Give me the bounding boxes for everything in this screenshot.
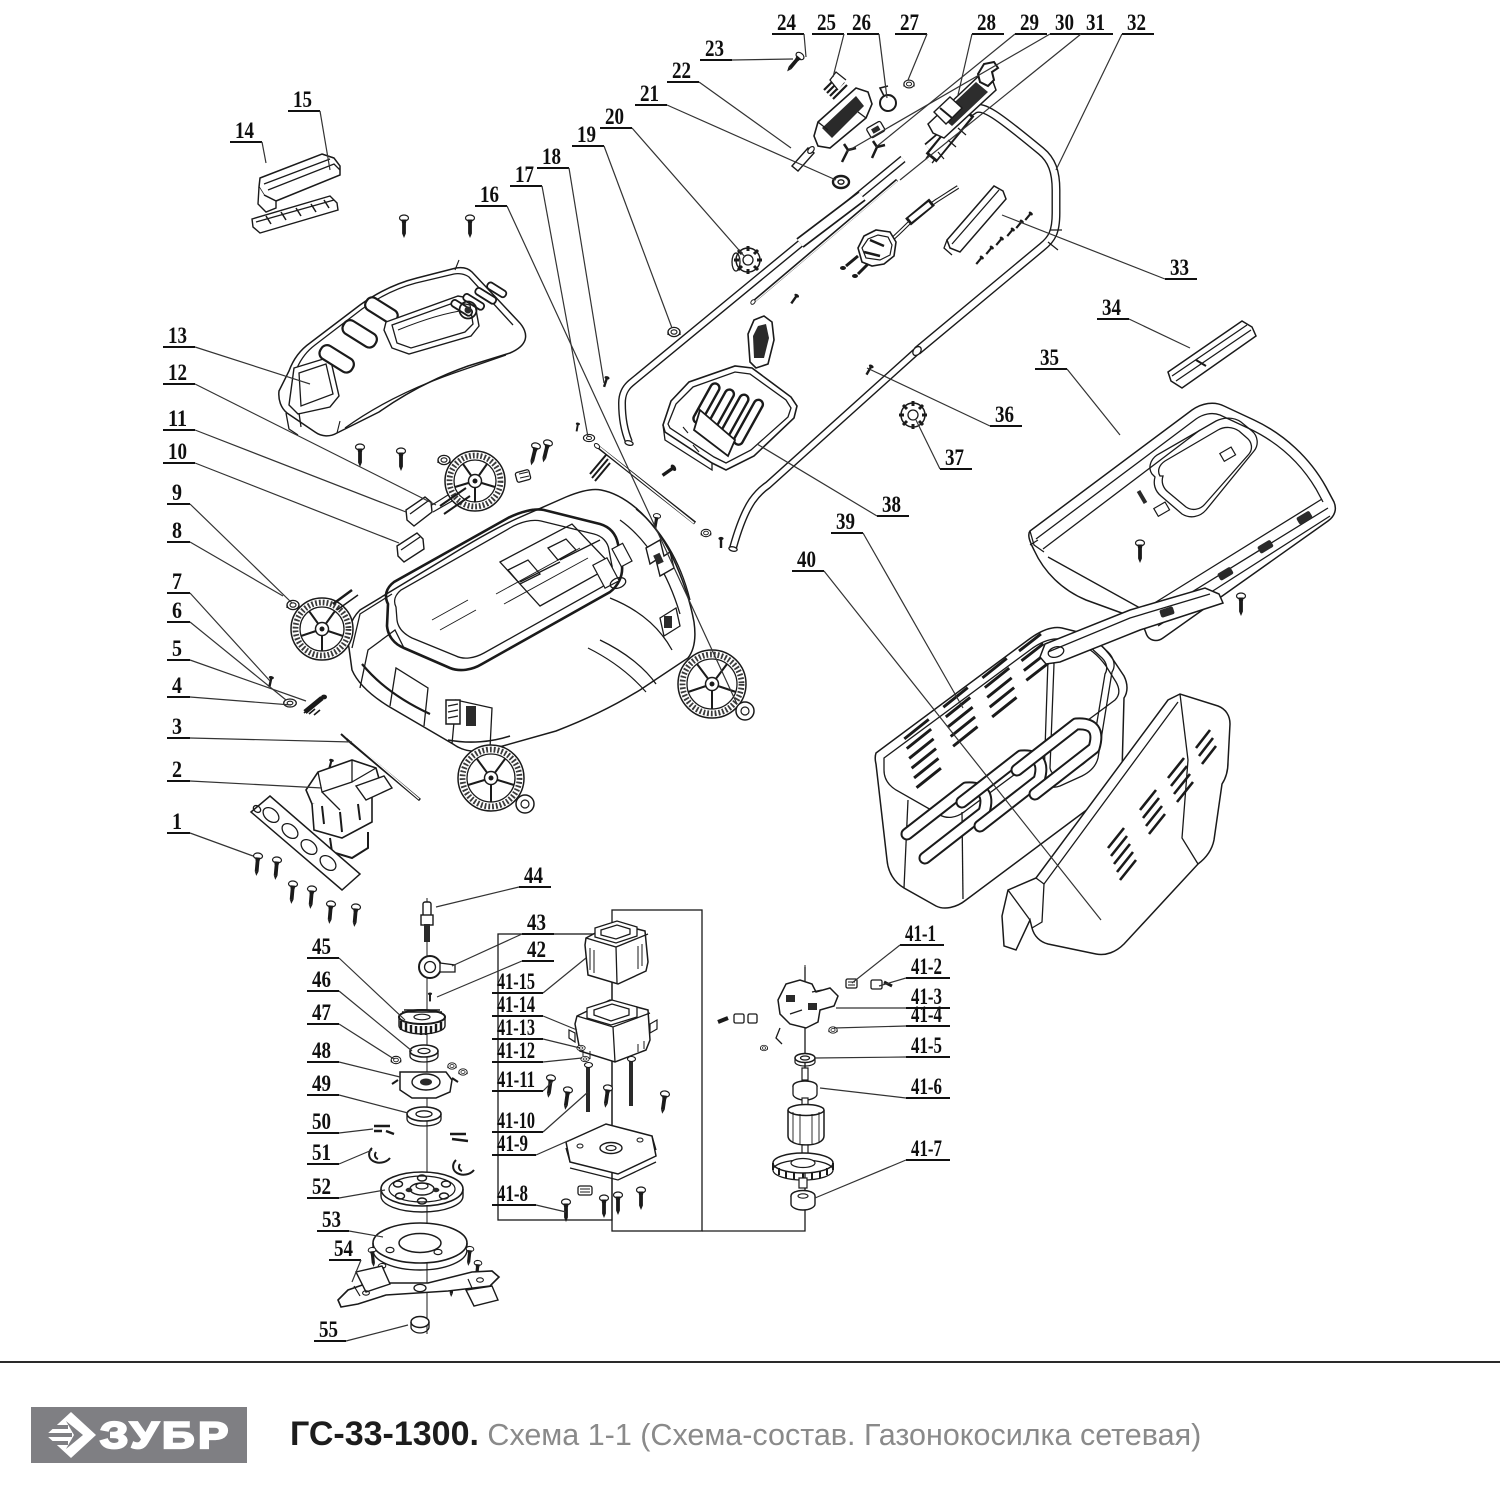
- svg-text:44: 44: [524, 863, 543, 888]
- svg-text:12: 12: [168, 360, 187, 385]
- svg-text:16: 16: [480, 182, 499, 207]
- svg-text:41-10: 41-10: [497, 1108, 535, 1133]
- svg-text:36: 36: [995, 402, 1014, 427]
- svg-text:24: 24: [777, 10, 796, 35]
- svg-text:5: 5: [172, 636, 182, 661]
- svg-text:48: 48: [312, 1038, 331, 1063]
- svg-text:21: 21: [640, 81, 659, 106]
- svg-text:2: 2: [172, 757, 182, 782]
- svg-text:30: 30: [1055, 10, 1074, 35]
- svg-text:41-8: 41-8: [497, 1181, 528, 1206]
- svg-text:50: 50: [312, 1109, 331, 1134]
- svg-text:49: 49: [312, 1071, 331, 1096]
- svg-text:43: 43: [527, 910, 546, 935]
- svg-text:ГС-33-1300. Схема 1-1 (Схема-с: ГС-33-1300. Схема 1-1 (Схема-состав. Газ…: [290, 1415, 1201, 1453]
- svg-text:7: 7: [172, 569, 182, 594]
- svg-text:17: 17: [515, 162, 534, 187]
- svg-text:13: 13: [168, 323, 187, 348]
- svg-text:20: 20: [605, 104, 624, 129]
- svg-text:53: 53: [322, 1207, 341, 1232]
- svg-text:41-5: 41-5: [911, 1033, 942, 1058]
- svg-text:42: 42: [527, 937, 546, 962]
- svg-text:1: 1: [172, 809, 182, 834]
- svg-text:41-14: 41-14: [497, 992, 535, 1017]
- svg-text:41-2: 41-2: [911, 954, 942, 979]
- svg-text:41-4: 41-4: [911, 1002, 942, 1027]
- svg-text:3: 3: [172, 714, 182, 739]
- svg-text:10: 10: [168, 439, 187, 464]
- svg-text:23: 23: [705, 36, 724, 61]
- svg-text:8: 8: [172, 518, 182, 543]
- svg-text:9: 9: [172, 480, 182, 505]
- svg-text:26: 26: [852, 10, 871, 35]
- svg-text:41-13: 41-13: [497, 1015, 535, 1040]
- svg-text:54: 54: [334, 1236, 353, 1261]
- svg-text:46: 46: [312, 967, 331, 992]
- svg-text:4: 4: [172, 673, 182, 698]
- svg-text:41-7: 41-7: [911, 1136, 942, 1161]
- svg-text:22: 22: [672, 58, 691, 83]
- svg-text:41-9: 41-9: [497, 1131, 528, 1156]
- svg-text:19: 19: [577, 122, 596, 147]
- svg-text:38: 38: [882, 492, 901, 517]
- svg-text:40: 40: [797, 547, 816, 572]
- svg-text:37: 37: [945, 445, 964, 470]
- svg-text:18: 18: [542, 144, 561, 169]
- svg-text:27: 27: [900, 10, 919, 35]
- svg-text:45: 45: [312, 934, 331, 959]
- svg-text:55: 55: [319, 1317, 338, 1342]
- svg-text:14: 14: [235, 118, 254, 143]
- svg-text:32: 32: [1127, 10, 1146, 35]
- svg-text:41-15: 41-15: [497, 969, 535, 994]
- svg-text:41-1: 41-1: [905, 921, 936, 946]
- svg-text:11: 11: [168, 406, 187, 431]
- svg-text:41-12: 41-12: [497, 1038, 535, 1063]
- svg-text:41-6: 41-6: [911, 1074, 942, 1099]
- svg-text:35: 35: [1040, 345, 1059, 370]
- svg-text:28: 28: [977, 10, 996, 35]
- svg-text:ЗУБР: ЗУБР: [100, 1415, 232, 1456]
- svg-text:41-11: 41-11: [497, 1067, 535, 1092]
- svg-text:33: 33: [1170, 255, 1189, 280]
- svg-text:25: 25: [817, 10, 836, 35]
- svg-text:34: 34: [1102, 295, 1121, 320]
- svg-text:6: 6: [172, 598, 182, 623]
- svg-text:51: 51: [312, 1140, 331, 1165]
- svg-text:39: 39: [836, 509, 855, 534]
- svg-text:52: 52: [312, 1174, 331, 1199]
- svg-text:31: 31: [1086, 10, 1105, 35]
- svg-text:29: 29: [1020, 10, 1039, 35]
- svg-text:47: 47: [312, 1000, 331, 1025]
- svg-text:15: 15: [293, 87, 312, 112]
